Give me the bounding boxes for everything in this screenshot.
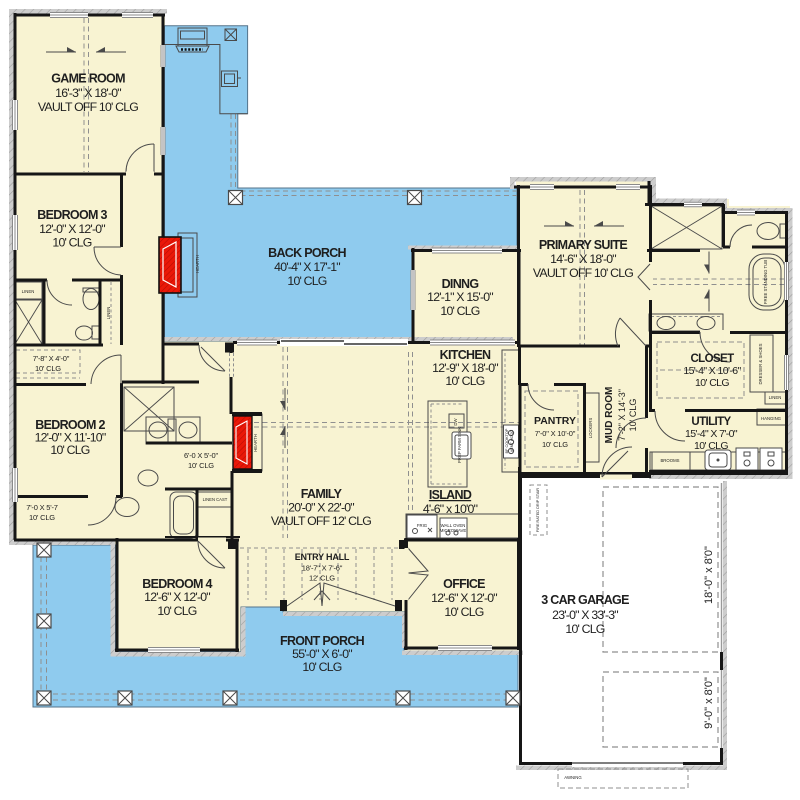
svg-text:10' CLG: 10' CLG <box>157 604 196 618</box>
svg-text:10' CLG: 10' CLG <box>302 660 341 674</box>
svg-text:HEARTH: HEARTH <box>253 434 258 452</box>
svg-text:DINNG: DINNG <box>442 277 479 291</box>
svg-text:MICROWAVE: MICROWAVE <box>440 528 467 533</box>
svg-text:4'-6" x 10'0": 4'-6" x 10'0" <box>423 502 478 516</box>
svg-text:10' CLG: 10' CLG <box>50 443 89 457</box>
svg-text:9'-0" x 8'0": 9'-0" x 8'0" <box>703 677 715 729</box>
svg-text:16'-3" X 18'-0": 16'-3" X 18'-0" <box>55 86 121 100</box>
svg-text:LINEN: LINEN <box>22 289 35 294</box>
svg-text:BEDROOM 3: BEDROOM 3 <box>37 208 107 222</box>
svg-text:BF COOKTOP: BF COOKTOP <box>505 428 509 453</box>
svg-text:FRONT PORCH: FRONT PORCH <box>280 634 365 648</box>
svg-text:10' CLG: 10' CLG <box>565 622 604 636</box>
svg-text:DRESSER & SHOES: DRESSER & SHOES <box>758 343 763 384</box>
svg-text:VAULT OFF 10' CLG: VAULT OFF 10' CLG <box>38 100 138 114</box>
svg-text:CLOSET: CLOSET <box>690 353 734 365</box>
svg-text:BROOMS: BROOMS <box>660 458 679 463</box>
svg-text:PRIMARY SUITE: PRIMARY SUITE <box>539 238 627 252</box>
svg-text:ENTRY HALL: ENTRY HALL <box>295 552 350 562</box>
svg-text:7'-2" X 14'-3": 7'-2" X 14'-3" <box>617 389 627 441</box>
svg-text:55'-0" X 6'-0": 55'-0" X 6'-0" <box>292 647 352 661</box>
svg-text:10' CLG: 10' CLG <box>628 399 638 432</box>
svg-text:FAMILY: FAMILY <box>301 487 343 501</box>
svg-text:BACK PORCH: BACK PORCH <box>268 246 346 260</box>
svg-text:PREP FARM SINK: PREP FARM SINK <box>457 427 462 463</box>
svg-text:10' CLG: 10' CLG <box>445 374 484 388</box>
svg-text:AWNING: AWNING <box>564 775 582 780</box>
svg-text:12'-9" X 18'-0": 12'-9" X 18'-0" <box>432 361 498 375</box>
svg-text:FIRE RATED DRIP STAIR: FIRE RATED DRIP STAIR <box>536 488 540 533</box>
svg-text:23'-0" X 33'-3": 23'-0" X 33'-3" <box>552 608 618 622</box>
svg-text:14'-6" X 18'-0": 14'-6" X 18'-0" <box>550 252 616 266</box>
svg-text:10' CLG: 10' CLG <box>188 461 214 470</box>
svg-text:6'-0 X 5'-0": 6'-0 X 5'-0" <box>184 451 219 460</box>
svg-text:HANGING: HANGING <box>761 416 782 421</box>
svg-text:7'-8" X 4'-0": 7'-8" X 4'-0" <box>33 354 70 363</box>
svg-text:7'-0" X 10'-0": 7'-0" X 10'-0" <box>535 429 576 438</box>
svg-text:VENT HOOD: VENT HOOD <box>510 429 514 452</box>
svg-text:12'-0" X 12'-0": 12'-0" X 12'-0" <box>39 222 105 236</box>
svg-text:FRIG: FRIG <box>417 523 428 528</box>
svg-text:12'-1" X 15'-0": 12'-1" X 15'-0" <box>427 290 493 304</box>
svg-text:10' CLG: 10' CLG <box>29 513 55 522</box>
svg-text:LINEN: LINEN <box>106 307 111 320</box>
svg-text:BEDROOM 4: BEDROOM 4 <box>142 577 212 591</box>
svg-text:10' CLG: 10' CLG <box>440 304 479 318</box>
svg-text:KITCHEN: KITCHEN <box>440 348 491 362</box>
svg-text:GAME ROOM: GAME ROOM <box>51 72 125 86</box>
svg-text:OFFICE: OFFICE <box>443 577 485 591</box>
svg-text:10' CLG: 10' CLG <box>444 605 483 619</box>
svg-text:VAULT OFF 10' CLG: VAULT OFF 10' CLG <box>533 266 633 280</box>
svg-text:10' CLG: 10' CLG <box>35 364 61 373</box>
svg-text:PANTRY: PANTRY <box>534 415 576 427</box>
svg-text:VAULT OFF 12' CLG: VAULT OFF 12' CLG <box>271 514 371 528</box>
svg-text:15'-4" X 10'-6": 15'-4" X 10'-6" <box>683 365 741 377</box>
svg-text:20'-0" X 22'-0": 20'-0" X 22'-0" <box>288 501 354 515</box>
svg-text:12'-6" X 12'-0": 12'-6" X 12'-0" <box>431 591 497 605</box>
svg-text:18'-0" x 8'0": 18'-0" x 8'0" <box>703 546 715 604</box>
svg-text:40'-4" X 17'-1": 40'-4" X 17'-1" <box>274 260 340 274</box>
svg-text:10' CLG: 10' CLG <box>542 440 568 449</box>
svg-text:LOCKERS: LOCKERS <box>588 418 593 439</box>
svg-text:10' CLG: 10' CLG <box>694 440 728 452</box>
svg-text:10' CLG: 10' CLG <box>287 274 326 288</box>
svg-text:12'-6" X 12'-0": 12'-6" X 12'-0" <box>144 590 210 604</box>
svg-text:MUD ROOM: MUD ROOM <box>604 387 615 444</box>
svg-text:15'-4" X 7'-0": 15'-4" X 7'-0" <box>685 428 738 440</box>
svg-text:3 CAR GARAGE: 3 CAR GARAGE <box>541 593 629 607</box>
svg-text:FREE STANDING TUB: FREE STANDING TUB <box>763 260 768 304</box>
svg-text:10' CLG: 10' CLG <box>695 377 729 389</box>
svg-text:LINEN: LINEN <box>769 395 782 400</box>
svg-text:ISLAND: ISLAND <box>429 488 472 502</box>
svg-text:12' CLG: 12' CLG <box>309 574 335 583</box>
svg-text:HEARTH: HEARTH <box>195 255 200 273</box>
svg-text:UTILITY: UTILITY <box>691 416 731 428</box>
svg-text:DW: DW <box>453 417 458 425</box>
svg-text:10' CLG: 10' CLG <box>52 236 91 250</box>
svg-text:LINEN CAST: LINEN CAST <box>203 497 228 502</box>
svg-text:18'-7" X 7'-6": 18'-7" X 7'-6" <box>302 564 343 573</box>
svg-text:7'-0 X 5'-7: 7'-0 X 5'-7 <box>26 503 58 512</box>
